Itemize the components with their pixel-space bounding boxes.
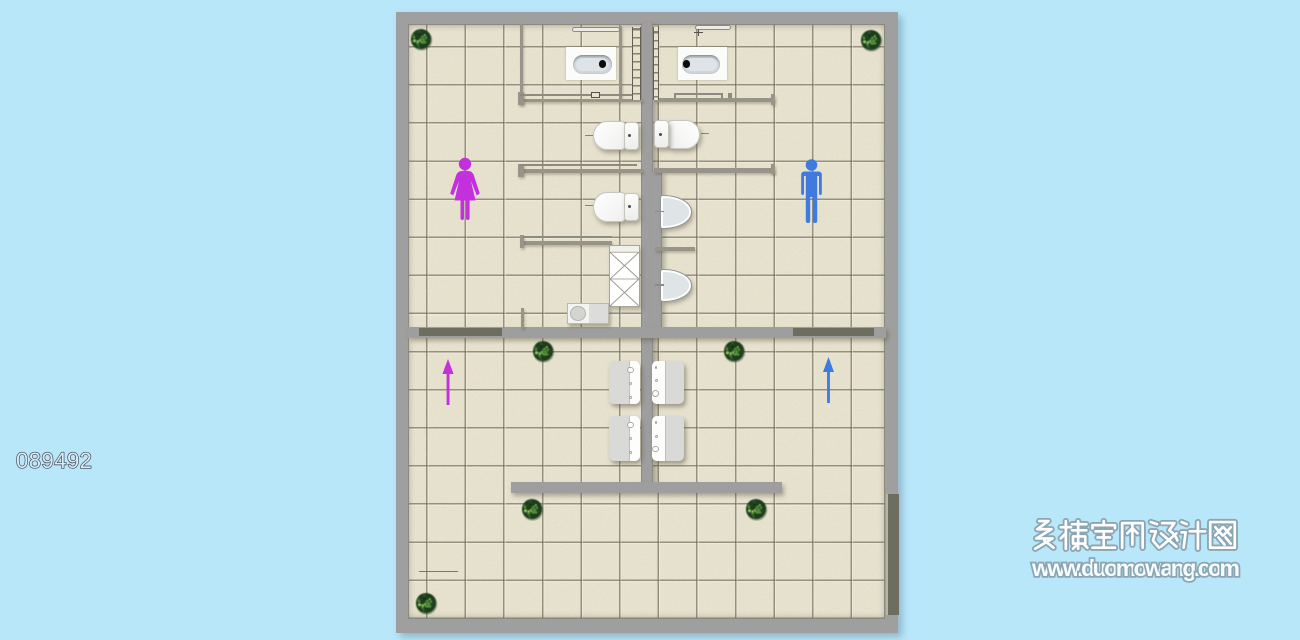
svg-text:089492: 089492 xyxy=(16,448,92,473)
svg-text:www.duomowang.com: www.duomowang.com xyxy=(1031,555,1240,581)
